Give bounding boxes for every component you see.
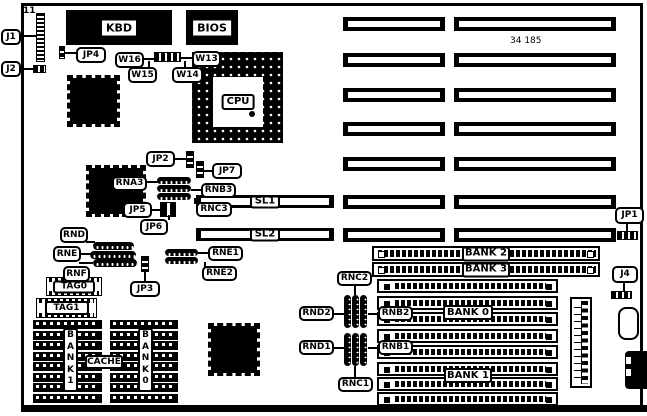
keyboard-controller-chip: KBD (66, 10, 172, 45)
simm-bank2-slot: BANK 2 (372, 246, 600, 261)
rnf-callout: RNF (63, 266, 90, 282)
slot-clip (378, 267, 385, 274)
leader-line (623, 283, 625, 291)
rnb3-callout: RNB3 (201, 183, 236, 198)
isa-slot-segment (343, 88, 445, 102)
isa-slot-segment (343, 228, 445, 242)
rne1-callout: RNE1 (208, 246, 243, 261)
rnb2-callout: RNB2 (378, 306, 413, 321)
cpu-socket-inner: CPU (213, 77, 263, 127)
isa-slot-segment (454, 228, 616, 242)
sl2-slot: SL2 (196, 228, 334, 241)
jp3-callout: JP3 (130, 281, 160, 297)
cache-label: CACHE (85, 355, 123, 369)
jp7-jumper (196, 161, 204, 178)
kbd-chip-label: KBD (102, 20, 136, 35)
slot-stripe (459, 199, 611, 205)
connector-notch (626, 369, 631, 376)
j1-connector (36, 13, 45, 62)
isa-slot-segment (343, 157, 445, 171)
jp3-jumper (141, 256, 149, 272)
socket-clip (546, 317, 552, 323)
isa-slot-segment (454, 17, 616, 31)
socket-clip (546, 334, 552, 340)
leader-line (204, 170, 212, 172)
leader-line (79, 262, 93, 264)
bank3-label: BANK 3 (462, 262, 510, 277)
bank0-label: BANK 0 (443, 305, 493, 320)
leader-line (194, 198, 196, 204)
leader-line (191, 189, 201, 191)
rnd-callout: RND (60, 227, 88, 243)
din-connector-outline (618, 307, 639, 340)
power-connector (570, 297, 592, 388)
slot-clip (378, 251, 385, 258)
bios-chip-label: BIOS (193, 20, 231, 35)
leader-line (626, 224, 628, 232)
rnb2-network (360, 295, 367, 328)
pin1-indicator (249, 111, 255, 117)
slot-stripe (348, 232, 440, 238)
connector-notch (626, 357, 631, 364)
rnd1-callout: RND1 (299, 340, 334, 355)
socket-clip (546, 397, 552, 403)
jp5-callout: JP5 (123, 202, 152, 218)
isa-slot-segment (454, 122, 616, 136)
simm-bank3-slot: BANK 3 (372, 262, 600, 277)
isa-slot-segment (343, 122, 445, 136)
socket-clip (384, 382, 390, 388)
chip-pins (36, 322, 99, 325)
slot-clip (587, 267, 594, 274)
rne2-network (165, 257, 198, 264)
rne-callout: RNE (53, 246, 81, 262)
jp4-callout: JP4 (76, 47, 106, 63)
leader-line (80, 253, 91, 255)
slot-stripe (459, 126, 611, 132)
slot-stripe (348, 161, 440, 167)
leader-line (354, 286, 356, 295)
bank1-label: BANK 1 (444, 368, 492, 383)
slot-stripe (459, 21, 611, 27)
socket-clip (546, 350, 552, 356)
rnc2-callout: RNC2 (337, 271, 372, 286)
socket-clip (546, 284, 552, 290)
j1-callout: J1 (1, 29, 21, 45)
chip-pins (36, 396, 99, 399)
bank2-label: BANK 2 (462, 246, 510, 261)
jp7-callout: JP7 (212, 163, 242, 179)
jp2-callout: JP2 (146, 151, 175, 167)
rnd-network (93, 242, 134, 250)
socket-clip (546, 367, 552, 373)
rne-network (90, 251, 136, 259)
cache-bank1-vertical-label: B A N K 1 (63, 328, 78, 392)
isa-slot-segment (454, 88, 616, 102)
isa-slot-segment (343, 53, 445, 67)
simm-socket (377, 279, 558, 293)
leader-line (175, 158, 186, 160)
leader-line (144, 58, 154, 60)
isa-slot-segment (343, 17, 445, 31)
sl2-label: SL2 (250, 228, 280, 241)
slot-stripe (459, 57, 611, 63)
leader-line (368, 347, 378, 349)
socket-clip (546, 301, 552, 307)
motherboard-diagram: 11 J1 J2 KBD BIOS JP4 W16 W13 W15 W14 CP… (0, 0, 647, 416)
j4-callout: J4 (612, 266, 638, 283)
isa-slot-segment (454, 195, 616, 209)
part-number: 34 185 (510, 36, 542, 46)
tag1-chip: TAG1 (36, 298, 97, 318)
socket-clip (384, 397, 390, 403)
rnd2-callout: RND2 (299, 306, 334, 321)
socket-band (393, 283, 546, 289)
cache-sram-chip (110, 394, 178, 403)
leader-line (354, 366, 356, 377)
leader-line (152, 209, 160, 211)
qfp-chip-lower (208, 323, 260, 376)
leader-line (334, 313, 344, 315)
rna3-network (157, 177, 191, 184)
w15-callout: W15 (128, 67, 157, 83)
j4-jumper (611, 291, 632, 299)
cpu-label: CPU (222, 94, 255, 110)
rne1-network (165, 249, 198, 256)
rnd2-network (344, 295, 351, 328)
socket-clip (546, 382, 552, 388)
bios-chip: BIOS (186, 10, 238, 45)
cache-sram-chip (33, 394, 102, 403)
slot-stripe (459, 232, 611, 238)
w14-callout: W14 (172, 67, 203, 83)
isa-slot-segment (454, 53, 616, 67)
jp1-callout: JP1 (615, 207, 644, 224)
cache-bank0-vertical-label: B A N K 0 (138, 328, 153, 392)
board-bottom-edge (21, 405, 647, 412)
slot-stripe (459, 92, 611, 98)
chip-pins (113, 396, 175, 399)
leader-line (181, 57, 192, 59)
socket-band (393, 333, 546, 339)
slot-clip (587, 251, 594, 258)
simm-socket (377, 392, 558, 406)
slot-stripe (348, 57, 440, 63)
slot-stripe (348, 92, 440, 98)
leader-line (334, 347, 344, 349)
qfp-chip-upper (67, 75, 120, 127)
chip-pins (113, 322, 175, 325)
leader-line (368, 313, 378, 315)
isa-slot-segment (343, 195, 445, 209)
power-connector-pins (582, 301, 588, 384)
jp6-callout: JP6 (140, 219, 168, 235)
w16-callout: W16 (115, 52, 144, 68)
slot-stripe (348, 126, 440, 132)
leader-line (168, 215, 170, 220)
socket-clip (384, 284, 390, 290)
rnc3-network (157, 193, 191, 200)
jp2-jumper (186, 151, 194, 168)
socket-clip (384, 367, 390, 373)
power-connector-cells (574, 301, 582, 384)
rnf-network (93, 259, 137, 267)
rnc3-callout: RNC3 (196, 202, 232, 217)
tag1-label: TAG1 (45, 301, 89, 315)
rnb1-network (360, 333, 367, 366)
leader-line (86, 241, 95, 243)
socket-band (393, 396, 546, 402)
rnb3-network (157, 185, 191, 192)
leader-line (198, 252, 208, 254)
rnd1-network (344, 333, 351, 366)
jp1-jumper (617, 231, 638, 240)
rna3-callout: RNA3 (112, 176, 147, 191)
socket-band (393, 349, 546, 355)
slot-stripe (348, 199, 440, 205)
rne2-callout: RNE2 (202, 266, 237, 281)
leader-line (65, 52, 76, 54)
w13-callout: W13 (192, 51, 221, 67)
w13-w16-jumper-block (154, 52, 181, 62)
pin-1-label: 11 (23, 6, 36, 16)
leader-line (20, 35, 36, 37)
rnc1-network (352, 333, 359, 366)
rnb1-callout: RNB1 (378, 340, 413, 355)
leader-line (147, 181, 158, 183)
rnc1-callout: RNC1 (338, 377, 373, 392)
slot-stripe (459, 161, 611, 167)
j2-callout: J2 (1, 61, 21, 77)
rnc2-network (352, 295, 359, 328)
sl1-label: SL1 (250, 195, 280, 208)
isa-slot-segment (454, 157, 616, 171)
leader-line (20, 68, 33, 70)
slot-stripe (348, 21, 440, 27)
keyboard-connector (625, 351, 647, 389)
j2-connector (33, 65, 46, 73)
